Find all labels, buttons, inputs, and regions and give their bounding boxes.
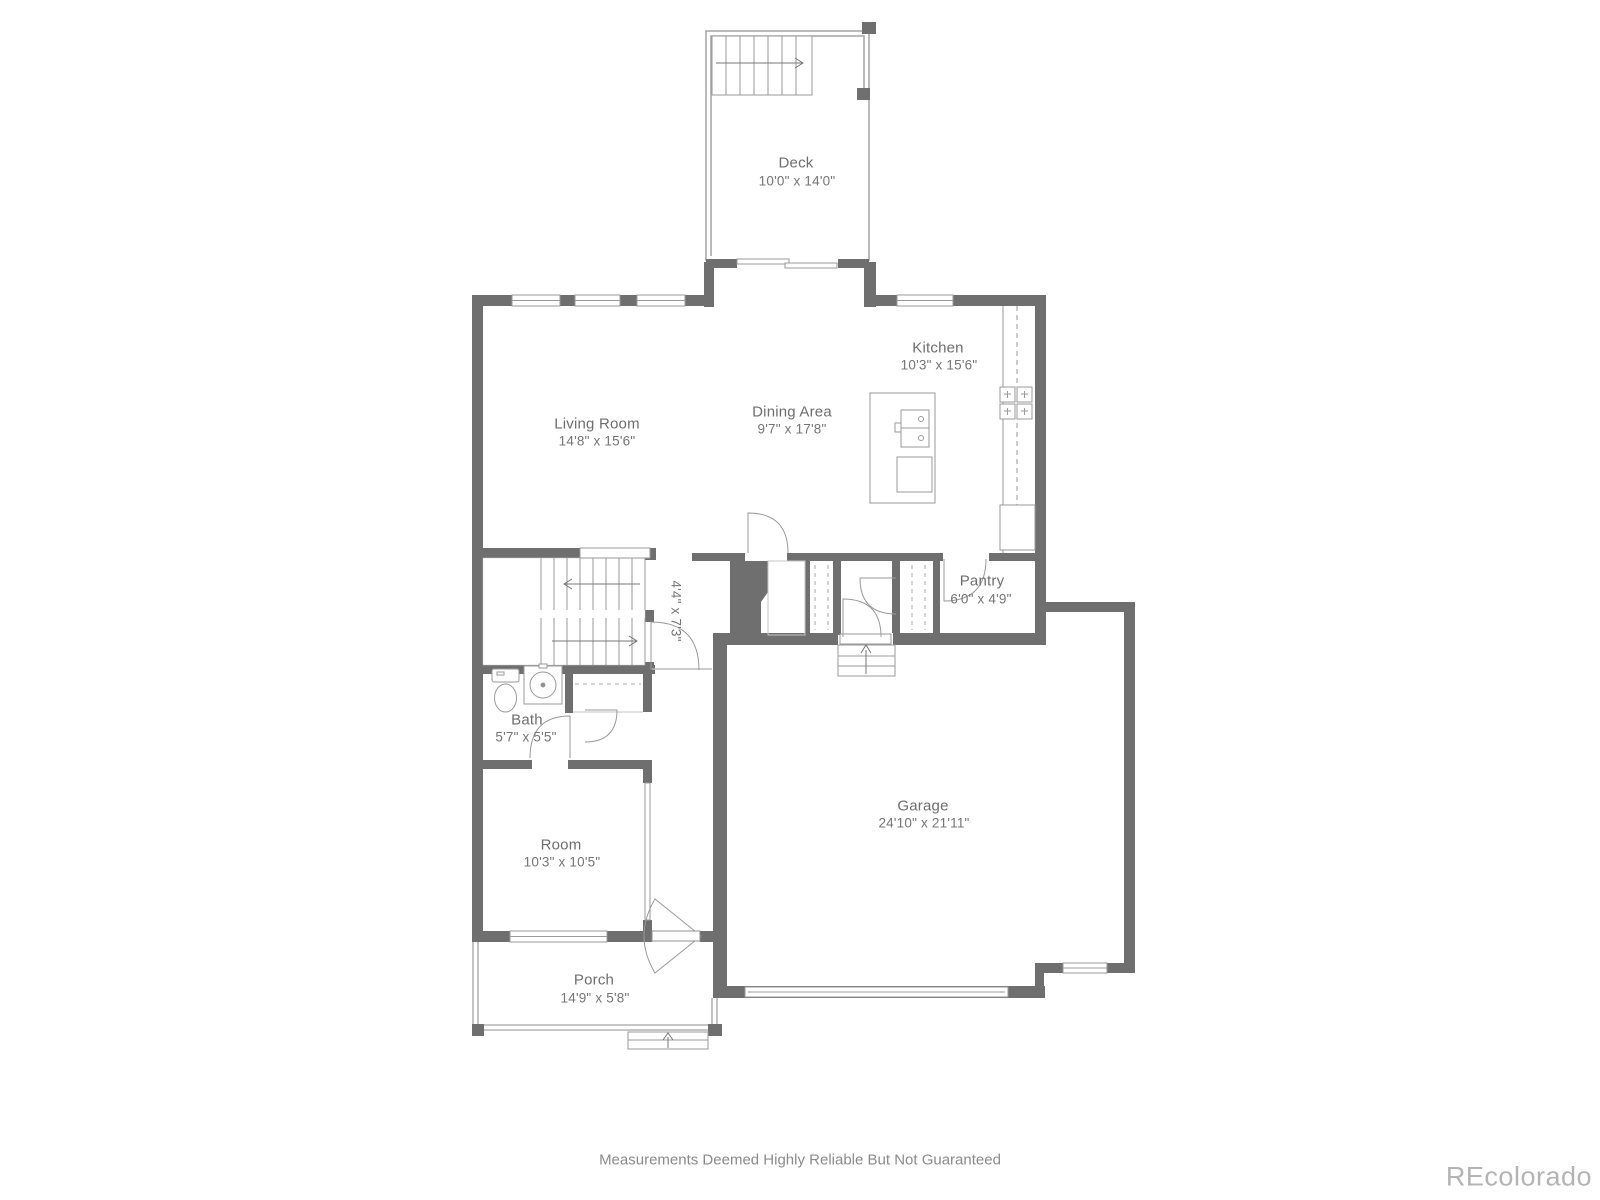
kitchen-label: Kitchen: [912, 340, 963, 357]
floor-plan-page: Deck 10'0" x 14'0" Living Room 14'8" x 1…: [0, 0, 1600, 1200]
deck-sliding-door: [737, 259, 837, 268]
pantry-label: Pantry: [960, 573, 1005, 590]
dining-area-label: Dining Area: [752, 404, 832, 421]
garage-label: Garage: [897, 798, 948, 815]
pantry-dims: 6'0" x 4'9": [950, 592, 1011, 607]
hall-closet-door-swing: [585, 710, 617, 742]
cooktop-icon: [1000, 387, 1032, 419]
disclaimer-text: Measurements Deemed Highly Reliable But …: [599, 1152, 1001, 1169]
deck-dims: 10'0" x 14'0": [759, 174, 836, 189]
garage-door: [745, 987, 1008, 997]
porch-dims: 14'9" x 5'8": [561, 991, 630, 1006]
deck-stairs: [712, 36, 812, 95]
kitchen-window: [897, 295, 953, 306]
main-staircase: [483, 548, 650, 665]
toilet-icon: [492, 669, 519, 712]
porch-steps: [628, 1032, 708, 1049]
stairwell-dims: 4'4" x 7'3": [669, 580, 684, 641]
bath-fixtures: [492, 664, 562, 712]
deck-label: Deck: [779, 155, 814, 172]
mudroom-door-swing: [860, 578, 896, 614]
kitchen-island: [870, 393, 935, 503]
garage-entry-door-swing: [843, 599, 881, 637]
living-room-dims: 14'8" x 15'6": [559, 434, 636, 449]
front-door-leaf: [652, 931, 700, 941]
bath-dims: 5'7" x 5'5": [495, 730, 556, 745]
dining-door-swing: [748, 513, 788, 553]
room-label: Room: [541, 837, 582, 854]
kitchen-dims: 10'3" x 15'6": [901, 358, 978, 373]
room-window: [510, 931, 607, 942]
living-room-windows: [512, 295, 685, 306]
living-room-label: Living Room: [554, 416, 640, 433]
garage-dims: 24'10" x 21'11": [878, 816, 969, 831]
garage-window: [1063, 963, 1107, 973]
sink-icon: [524, 664, 562, 704]
room-dims: 10'3" x 10'5": [524, 855, 601, 870]
watermark-text: REcolorado: [1446, 1162, 1592, 1193]
refrigerator-icon: [1000, 505, 1035, 550]
garage-entry-steps: [838, 645, 895, 676]
bath-label: Bath: [511, 712, 543, 729]
porch-label: Porch: [574, 972, 614, 989]
dining-area-dims: 9'7" x 17'8": [758, 422, 827, 437]
